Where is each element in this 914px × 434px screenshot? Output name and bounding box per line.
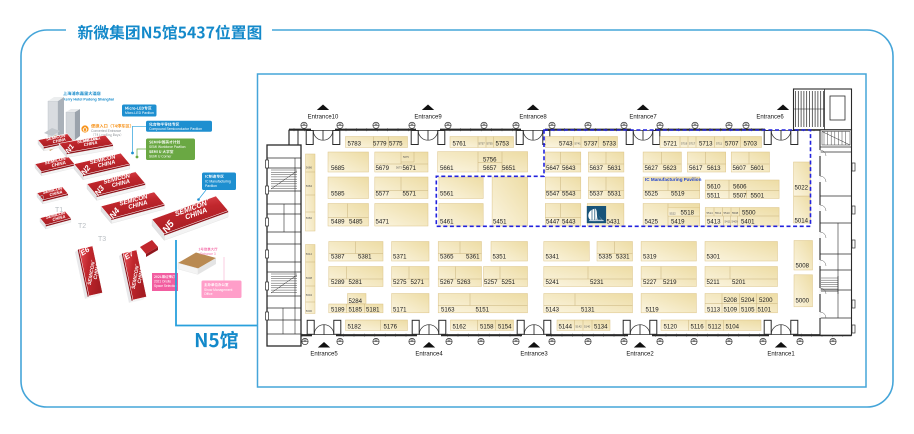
svg-text:Entrance8: Entrance8 — [519, 115, 547, 121]
svg-text:5489: 5489 — [331, 218, 345, 225]
svg-text:5608: 5608 — [306, 276, 313, 280]
svg-text:5143: 5143 — [546, 307, 560, 314]
svg-text:5409: 5409 — [732, 220, 739, 224]
svg-text:Entrance5: Entrance5 — [310, 352, 338, 358]
svg-text:5189: 5189 — [331, 307, 345, 314]
svg-text:5211: 5211 — [707, 279, 721, 286]
svg-text:5519: 5519 — [671, 190, 685, 197]
svg-text:5301: 5301 — [707, 253, 721, 260]
svg-text:5775: 5775 — [389, 140, 403, 147]
svg-text:5779: 5779 — [373, 140, 387, 147]
svg-text:5682: 5682 — [306, 216, 313, 220]
svg-text:5263: 5263 — [457, 279, 471, 286]
svg-text:5371: 5371 — [393, 253, 407, 260]
svg-text:5134: 5134 — [594, 323, 608, 330]
svg-text:5733: 5733 — [603, 140, 617, 147]
svg-text:5703: 5703 — [744, 140, 758, 147]
svg-text:5381: 5381 — [358, 253, 372, 260]
svg-text:5501: 5501 — [751, 193, 765, 200]
svg-text:5637: 5637 — [590, 165, 604, 172]
svg-text:Space Selection: Space Selection — [154, 284, 177, 288]
svg-text:5617: 5617 — [689, 165, 703, 172]
svg-text:5756: 5756 — [483, 157, 497, 164]
svg-text:5577: 5577 — [376, 190, 390, 197]
svg-text:5737: 5737 — [584, 140, 598, 147]
svg-text:5612: 5612 — [306, 252, 313, 256]
svg-text:5685: 5685 — [331, 165, 345, 172]
svg-text:5008: 5008 — [796, 263, 810, 270]
svg-text:5142: 5142 — [576, 325, 583, 329]
svg-text:5227: 5227 — [643, 279, 657, 286]
svg-text:0: 0 — [40, 195, 44, 202]
svg-text:5721: 5721 — [664, 140, 678, 147]
svg-text:5514: 5514 — [707, 211, 714, 215]
svg-text:SEMI Workforce Pavilion: SEMI Workforce Pavilion — [149, 145, 186, 149]
svg-text:5425: 5425 — [645, 218, 659, 225]
svg-text:5684: 5684 — [306, 184, 313, 188]
svg-text:5271: 5271 — [411, 279, 425, 286]
svg-text:T2: T2 — [78, 223, 86, 230]
svg-text:5561: 5561 — [440, 190, 454, 197]
svg-text:T3: T3 — [98, 236, 106, 243]
svg-text:5651: 5651 — [502, 165, 516, 172]
svg-text:5623: 5623 — [663, 165, 677, 172]
svg-text:5783: 5783 — [348, 140, 362, 147]
svg-text:5319: 5319 — [643, 253, 657, 260]
svg-text:5401: 5401 — [741, 218, 755, 225]
svg-text:5204: 5204 — [741, 297, 755, 304]
svg-text:5675: 5675 — [403, 155, 409, 159]
svg-text:5119: 5119 — [646, 307, 660, 314]
svg-text:Entrance1: Entrance1 — [767, 352, 795, 358]
svg-text:5241: 5241 — [546, 279, 560, 286]
svg-text:5257: 5257 — [484, 279, 498, 286]
svg-text:5512: 5512 — [715, 211, 722, 215]
svg-text:5251: 5251 — [502, 279, 516, 286]
svg-text:Entrance 3: Entrance 3 — [200, 252, 216, 256]
svg-text:Entrance10: Entrance10 — [308, 115, 339, 121]
svg-text:5154: 5154 — [498, 323, 512, 330]
svg-text:5201: 5201 — [732, 279, 746, 286]
svg-text:5361: 5361 — [466, 253, 480, 260]
svg-text:5510: 5510 — [724, 211, 731, 215]
svg-text:5471: 5471 — [376, 218, 390, 225]
svg-text:SEMI U Corner: SEMI U Corner — [149, 155, 172, 159]
svg-text:2021 Onsite: 2021 Onsite — [154, 280, 171, 284]
svg-text:5525: 5525 — [645, 190, 659, 197]
svg-text:IC Manufacturing: IC Manufacturing — [205, 180, 231, 184]
svg-text:5351: 5351 — [493, 253, 507, 260]
svg-text:5717: 5717 — [689, 142, 696, 146]
svg-text:Office: Office — [204, 292, 213, 296]
svg-text:5707: 5707 — [725, 140, 739, 147]
svg-text:5461: 5461 — [440, 218, 454, 225]
svg-text:5411: 5411 — [725, 220, 731, 224]
svg-text:5219: 5219 — [663, 279, 677, 286]
svg-text:5116: 5116 — [691, 323, 705, 330]
svg-text:Entrance6: Entrance6 — [756, 115, 784, 121]
svg-text:Micro-LED Pavilion: Micro-LED Pavilion — [125, 111, 154, 115]
svg-text:5661: 5661 — [440, 165, 454, 172]
svg-text:5267: 5267 — [440, 279, 454, 286]
svg-text:5755: 5755 — [487, 142, 494, 146]
svg-text:5585: 5585 — [331, 190, 345, 197]
svg-text:5518: 5518 — [681, 210, 695, 217]
svg-text:5331: 5331 — [616, 253, 630, 260]
svg-text:5335: 5335 — [599, 253, 613, 260]
svg-text:5387: 5387 — [331, 253, 345, 260]
svg-text:5643: 5643 — [562, 165, 576, 172]
svg-text:5606: 5606 — [733, 184, 747, 191]
svg-text:5158: 5158 — [480, 323, 494, 330]
svg-text:5208: 5208 — [724, 297, 738, 304]
svg-text:Show Management: Show Management — [204, 288, 232, 292]
svg-text:5419: 5419 — [671, 218, 685, 225]
svg-text:Kerry Hotel Pudong Shanghai: Kerry Hotel Pudong Shanghai — [63, 98, 114, 102]
svg-text:Entrance4: Entrance4 — [415, 352, 443, 358]
svg-text:Compound Semiconductor Pavilio: Compound Semiconductor Pavilion — [149, 127, 202, 131]
svg-text:5113: 5113 — [707, 307, 721, 314]
svg-text:IC Manufacturing Pavilion: IC Manufacturing Pavilion — [645, 177, 702, 182]
svg-text:5182: 5182 — [348, 323, 362, 330]
svg-text:5144: 5144 — [559, 323, 573, 330]
svg-text:5673: 5673 — [396, 166, 402, 170]
svg-text:5547: 5547 — [546, 190, 560, 197]
svg-text:T1: T1 — [55, 207, 63, 214]
svg-text:5543: 5543 — [562, 190, 576, 197]
svg-text:5627: 5627 — [645, 165, 659, 172]
svg-text:Converted Entrance: Converted Entrance — [91, 129, 121, 133]
svg-text:5741: 5741 — [575, 142, 582, 146]
svg-text:5275: 5275 — [393, 279, 407, 286]
svg-text:5711: 5711 — [716, 142, 722, 146]
svg-text:Entrance7: Entrance7 — [629, 115, 657, 121]
svg-text:5631: 5631 — [608, 165, 622, 172]
svg-text:5000: 5000 — [796, 298, 810, 305]
svg-text:Entrance2: Entrance2 — [626, 352, 654, 358]
svg-text:5162: 5162 — [453, 323, 467, 330]
svg-text:5671: 5671 — [403, 165, 417, 172]
svg-text:5289: 5289 — [331, 279, 345, 286]
svg-text:5757: 5757 — [479, 142, 486, 146]
svg-text:5713: 5713 — [699, 140, 713, 147]
svg-text:5511: 5511 — [707, 193, 721, 200]
svg-text:5176: 5176 — [384, 323, 398, 330]
svg-text:5686: 5686 — [306, 166, 313, 170]
svg-text:5571: 5571 — [403, 190, 417, 197]
svg-text:5607: 5607 — [733, 165, 747, 172]
svg-text:5185: 5185 — [349, 307, 363, 314]
svg-text:5743: 5743 — [559, 140, 573, 147]
svg-text:5508: 5508 — [732, 211, 739, 215]
svg-text:5431: 5431 — [607, 218, 621, 225]
svg-text:5531: 5531 — [608, 190, 622, 197]
svg-text:5451: 5451 — [493, 218, 507, 225]
svg-text:5171: 5171 — [393, 307, 407, 314]
svg-text:5163: 5163 — [441, 307, 455, 314]
svg-text:5613: 5613 — [707, 165, 721, 172]
svg-text:Pavilion: Pavilion — [205, 184, 217, 188]
svg-text:5105: 5105 — [741, 307, 755, 314]
svg-text:5151: 5151 — [476, 307, 490, 314]
svg-text:5719: 5719 — [681, 142, 688, 146]
svg-text:5109: 5109 — [724, 307, 738, 314]
svg-text:5604: 5604 — [306, 293, 313, 297]
svg-text:5601: 5601 — [751, 165, 765, 172]
svg-text:5507: 5507 — [733, 193, 747, 200]
svg-text:5485: 5485 — [349, 218, 363, 225]
svg-text:5413: 5413 — [707, 218, 721, 225]
svg-text:5014: 5014 — [795, 218, 809, 225]
svg-text:5365: 5365 — [440, 253, 454, 260]
svg-text:5537: 5537 — [590, 190, 604, 197]
svg-text:5500: 5500 — [742, 210, 756, 217]
svg-text:5022: 5022 — [795, 185, 809, 192]
svg-text:Entrance9: Entrance9 — [414, 115, 442, 121]
svg-text:5447: 5447 — [546, 218, 560, 225]
svg-text:5522: 5522 — [670, 211, 677, 215]
svg-text:Entrance3: Entrance3 — [520, 352, 548, 358]
svg-text:5140: 5140 — [584, 325, 591, 329]
svg-text:5120: 5120 — [664, 323, 678, 330]
svg-text:5679: 5679 — [376, 165, 390, 172]
svg-text:5104: 5104 — [726, 323, 740, 330]
svg-text:5281: 5281 — [349, 279, 363, 286]
svg-text:5131: 5131 — [581, 307, 595, 314]
svg-text:5181: 5181 — [366, 307, 380, 314]
svg-text:5610: 5610 — [707, 184, 721, 191]
svg-text:5231: 5231 — [590, 279, 604, 286]
svg-text:5443: 5443 — [562, 218, 576, 225]
svg-text:5657: 5657 — [483, 165, 497, 172]
svg-text:5753: 5753 — [496, 140, 510, 147]
svg-text:5341: 5341 — [546, 253, 560, 260]
svg-text:5761: 5761 — [453, 140, 467, 147]
svg-text:5600: 5600 — [306, 309, 313, 313]
svg-text:5200: 5200 — [759, 297, 773, 304]
svg-text:5647: 5647 — [546, 165, 560, 172]
svg-text:5112: 5112 — [708, 323, 722, 330]
svg-text:5101: 5101 — [758, 307, 772, 314]
